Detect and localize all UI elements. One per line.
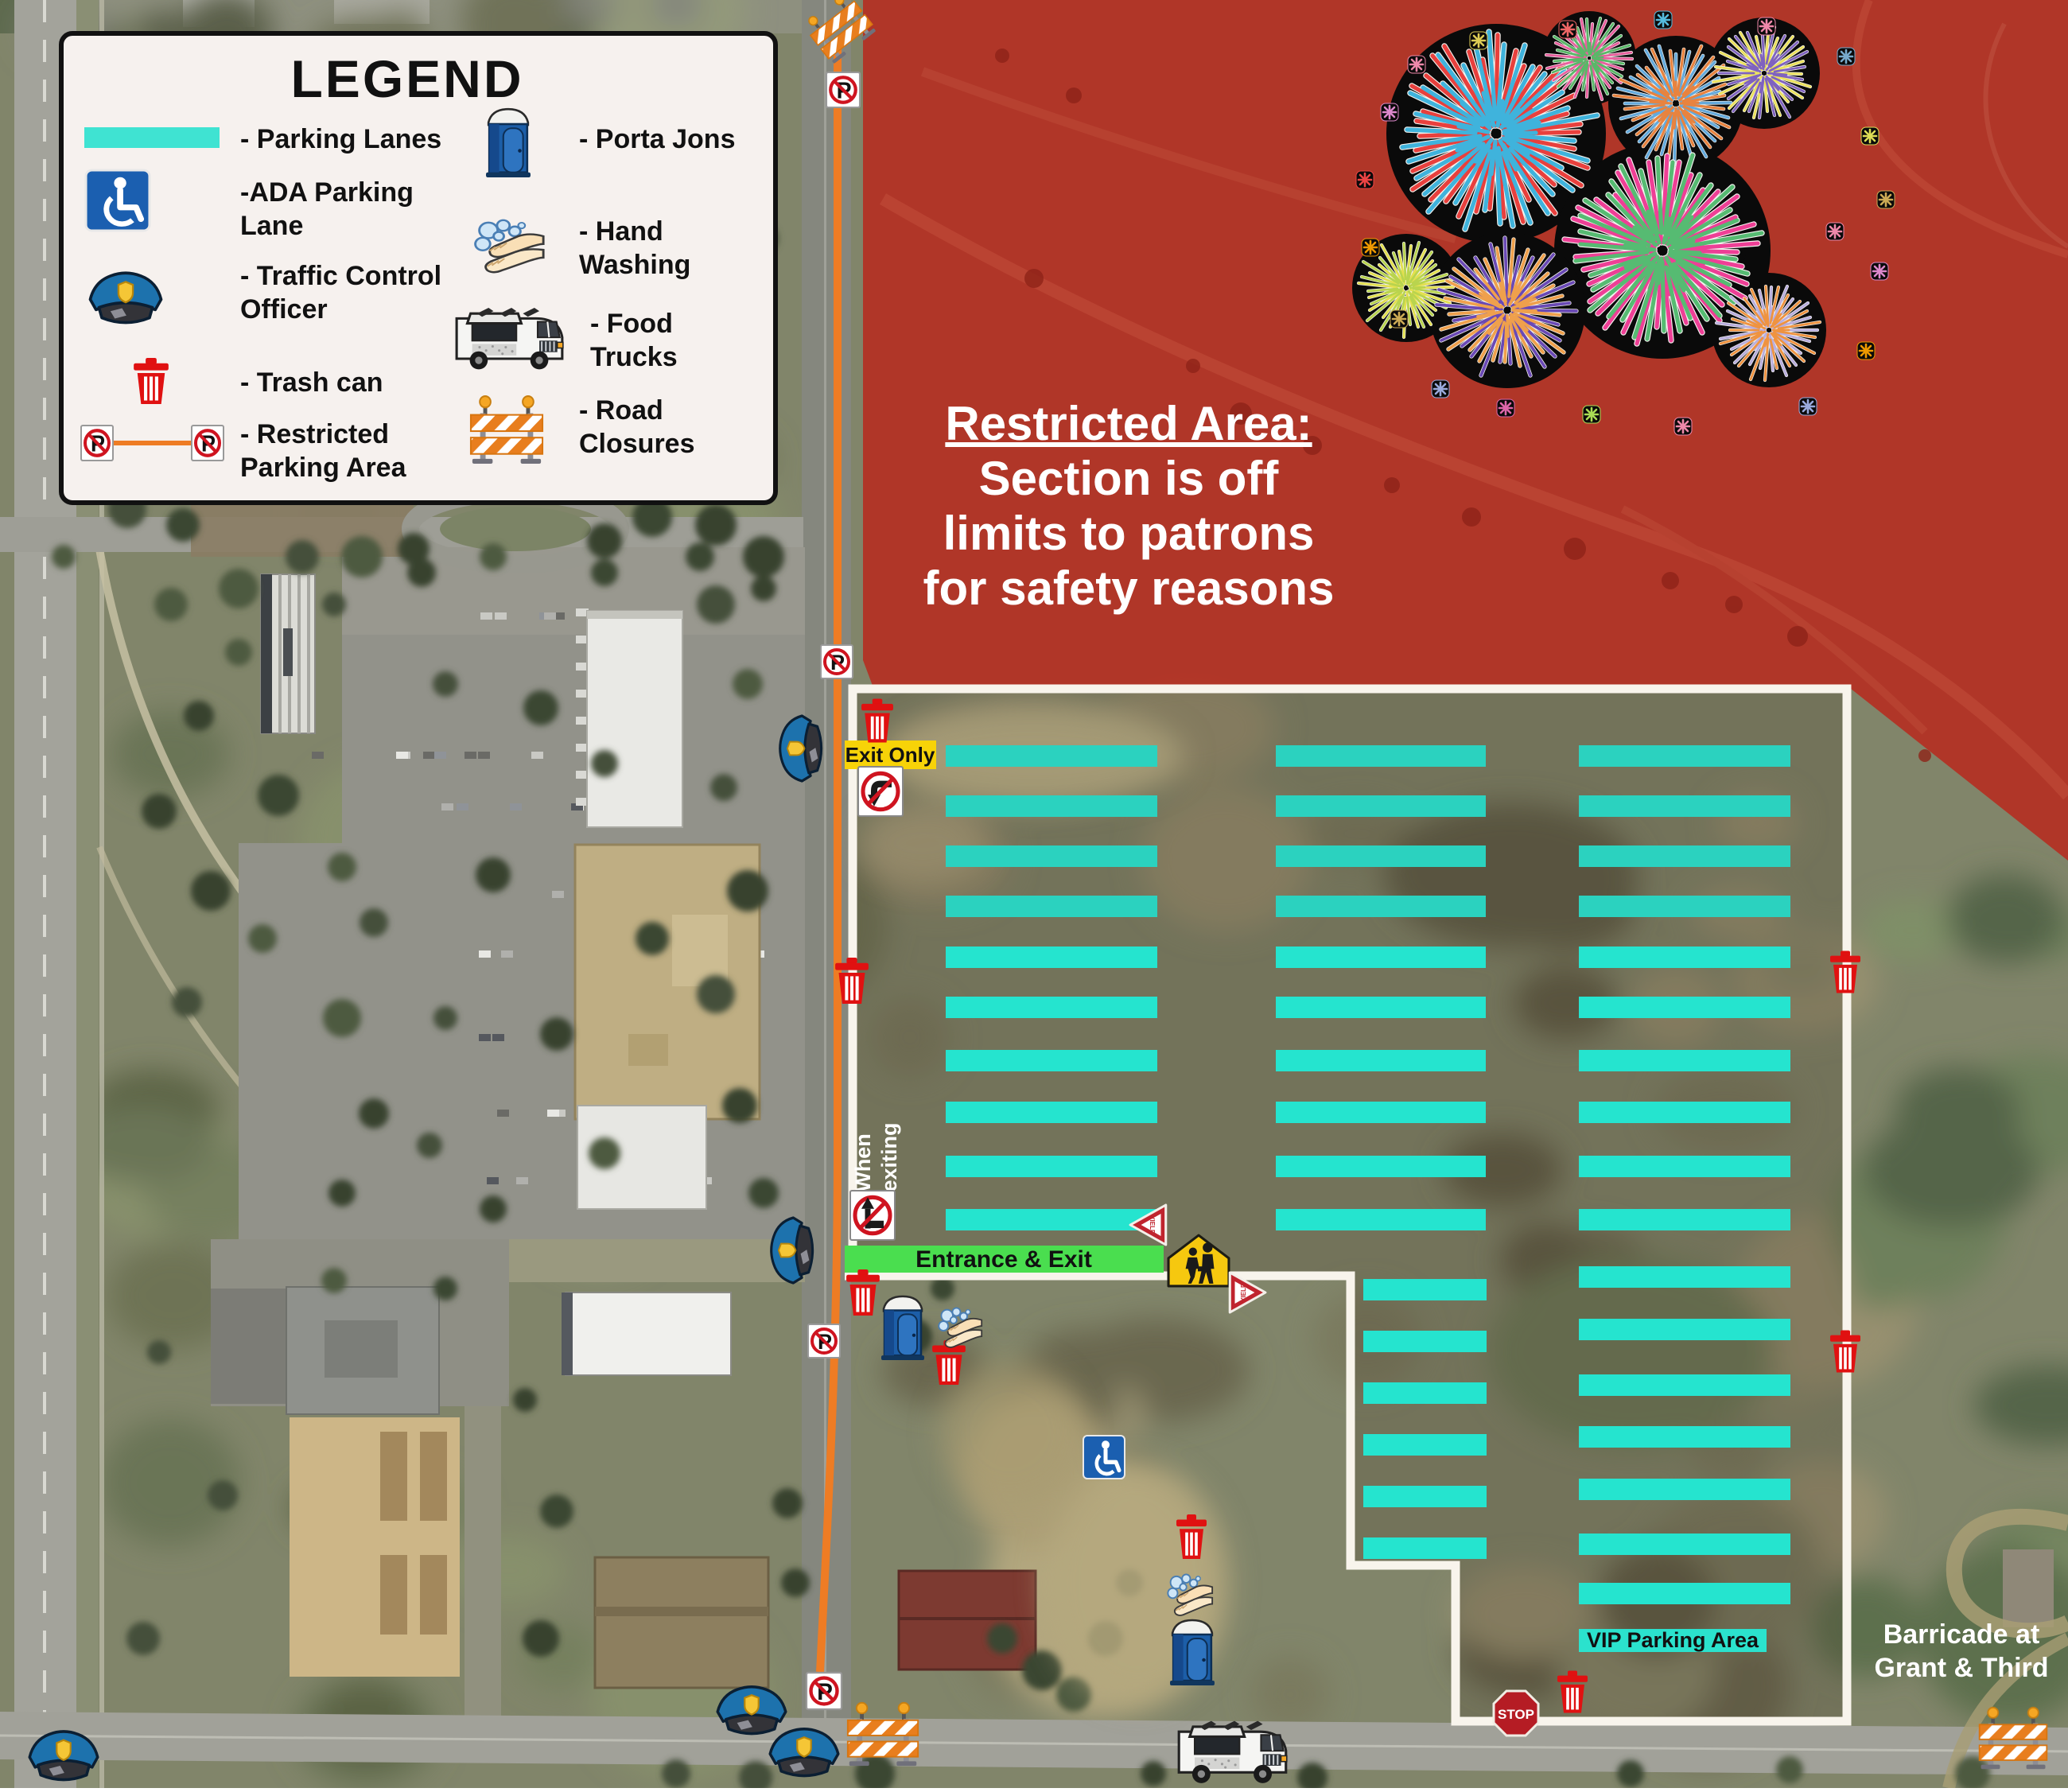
svg-text:Restricted Area:: Restricted Area:: [945, 397, 1312, 450]
svg-text:- Road: - Road: [579, 395, 663, 426]
svg-text:Officer: Officer: [240, 294, 328, 325]
svg-text:LEGEND: LEGEND: [290, 49, 523, 108]
svg-text:Section is off: Section is off: [979, 452, 1280, 505]
svg-text:exiting: exiting: [877, 1122, 901, 1191]
svg-text:- Trash can: - Trash can: [240, 367, 383, 398]
svg-text:Parking Area: Parking Area: [240, 453, 407, 483]
svg-text:- Traffic Control: - Traffic Control: [240, 261, 441, 291]
svg-text:VIP Parking Area: VIP Parking Area: [1587, 1628, 1759, 1652]
svg-text:-ADA Parking: -ADA Parking: [240, 177, 414, 208]
svg-text:When: When: [851, 1133, 875, 1192]
svg-text:Barricade at: Barricade at: [1883, 1619, 2040, 1650]
svg-text:- Food: - Food: [590, 309, 673, 339]
svg-text:limits to patrons: limits to patrons: [943, 507, 1315, 560]
svg-text:Trucks: Trucks: [590, 342, 678, 372]
svg-text:- Porta Jons: - Porta Jons: [579, 124, 735, 154]
svg-text:Closures: Closures: [579, 429, 695, 459]
svg-text:- Parking Lanes: - Parking Lanes: [240, 124, 441, 154]
svg-text:Exit Only: Exit Only: [845, 743, 935, 767]
svg-text:for safety reasons: for safety reasons: [923, 562, 1335, 615]
svg-text:Grant & Third: Grant & Third: [1874, 1653, 2048, 1683]
svg-text:Lane: Lane: [240, 211, 303, 241]
svg-text:- Hand: - Hand: [579, 216, 663, 247]
svg-text:Entrance & Exit: Entrance & Exit: [915, 1246, 1092, 1273]
svg-text:Washing: Washing: [579, 250, 690, 280]
svg-text:- Restricted: - Restricted: [240, 419, 389, 449]
